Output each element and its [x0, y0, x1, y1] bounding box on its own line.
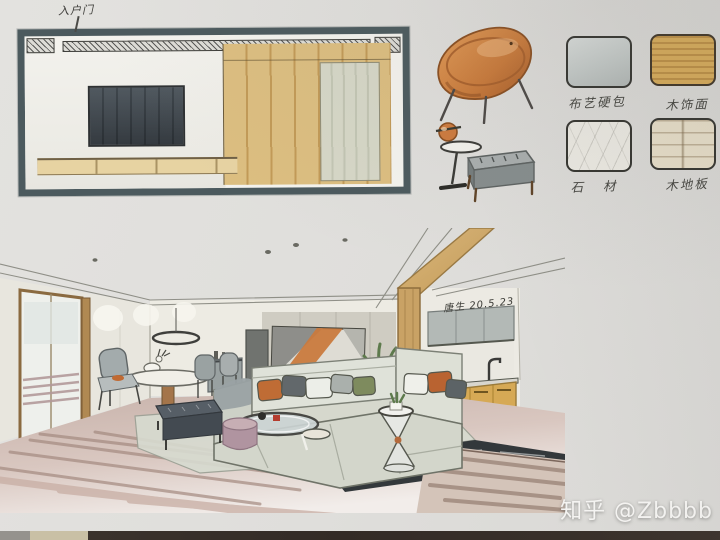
table-edge-strip [0, 531, 720, 540]
tv-wall-elevation-drawing [17, 27, 410, 197]
material-label-wood-veneer: 木饰面 [642, 92, 720, 114]
material-swatch-stone [566, 120, 632, 172]
elevation-annotation: 入户门 [58, 1, 95, 18]
material-label-stone: 石 材 [552, 174, 643, 196]
chair-shell [432, 24, 537, 105]
material-swatch-wood-veneer [650, 34, 716, 86]
material-swatch-fabric [566, 36, 632, 88]
table-edge-dark [88, 531, 720, 540]
elevation-tv-screen [88, 85, 185, 147]
elevation-tv-cabinet [37, 157, 237, 175]
ceiling-spotlights [93, 238, 348, 262]
material-label-fabric: 布艺硬包 [552, 90, 643, 114]
gray-ottoman [468, 151, 534, 201]
table-edge-gray [0, 531, 30, 540]
design-board-photo: 入户门 [0, 0, 720, 540]
elevation-glass-panel [320, 62, 381, 181]
saucer-chair-sketch [424, 24, 544, 124]
table-edge-beige [30, 531, 88, 540]
zhihu-watermark: 知乎 @Zbbbb [560, 493, 713, 525]
lamp-and-ottoman-sketch [424, 116, 539, 208]
elevation-hatch-left [26, 38, 54, 53]
material-label-wood-floor: 木地板 [642, 172, 720, 196]
pouf [223, 418, 257, 450]
material-swatch-wood-floor [650, 118, 716, 170]
living-room-perspective-rendering [0, 228, 565, 513]
